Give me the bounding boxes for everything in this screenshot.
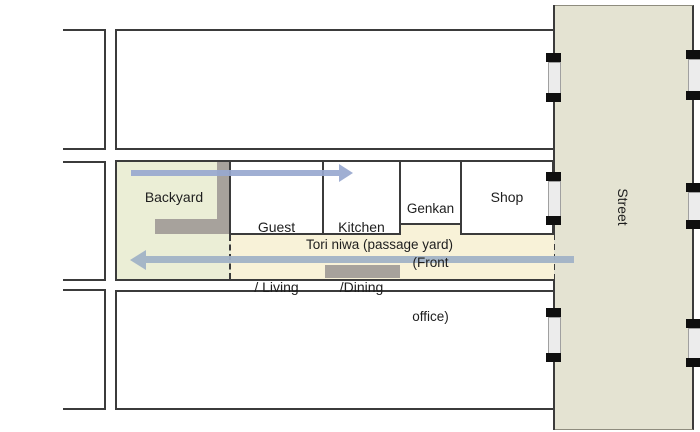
guest-living-label-line1: Guest	[229, 217, 324, 237]
neighbor-building-top	[115, 29, 555, 150]
guest-living-label: Guest / Living	[229, 177, 324, 337]
genkan-label: Genkan (Front office)	[399, 164, 462, 362]
flow-arrow-right-icon	[131, 170, 339, 176]
door-tick-icon	[546, 353, 561, 362]
door-panel	[688, 192, 700, 222]
door-tick-icon	[686, 358, 700, 367]
neighbor-plot-left-1	[63, 29, 106, 150]
door-tick-icon	[686, 220, 700, 229]
street-label: Street	[613, 167, 633, 247]
shop-label: Shop	[460, 187, 554, 207]
genkan-label-line3: office)	[399, 308, 462, 326]
entrance-marker	[686, 50, 700, 100]
door-panel	[688, 59, 700, 93]
door-panel	[548, 317, 561, 355]
genkan-label-line1: Genkan	[399, 200, 462, 218]
door-panel	[548, 62, 561, 95]
door-tick-icon	[686, 319, 700, 328]
guest-living-label-line2: / Living	[229, 277, 324, 297]
kitchen-dining-label-line2: /Dining	[322, 277, 401, 297]
entrance-marker	[546, 53, 561, 102]
entrance-marker	[546, 308, 561, 362]
door-panel	[688, 328, 700, 360]
door-tick-icon	[546, 93, 561, 102]
gray-block-backyard-foot	[155, 219, 231, 234]
door-tick-icon	[546, 216, 561, 225]
neighbor-plot-left-2	[63, 161, 106, 281]
entrance-marker	[686, 183, 700, 229]
entrance-marker	[686, 319, 700, 367]
door-tick-icon	[546, 172, 561, 181]
tori-niwa-label: Tori niwa (passage yard)	[231, 236, 554, 254]
door-tick-icon	[546, 308, 561, 317]
backyard-label: Backyard	[117, 187, 231, 207]
door-tick-icon	[686, 183, 700, 192]
door-tick-icon	[546, 53, 561, 62]
floor-plan-diagram: Backyard Guest / Living Kitchen /Dining …	[0, 0, 700, 432]
neighbor-plot-left-3	[63, 289, 106, 410]
flow-arrow-left-head-icon	[130, 250, 146, 270]
genkan-label-line2: (Front	[399, 254, 462, 272]
kitchen-dining-label-line1: Kitchen	[322, 217, 401, 237]
door-tick-icon	[686, 50, 700, 59]
door-tick-icon	[686, 91, 700, 100]
kitchen-dining-label: Kitchen /Dining	[322, 177, 401, 337]
